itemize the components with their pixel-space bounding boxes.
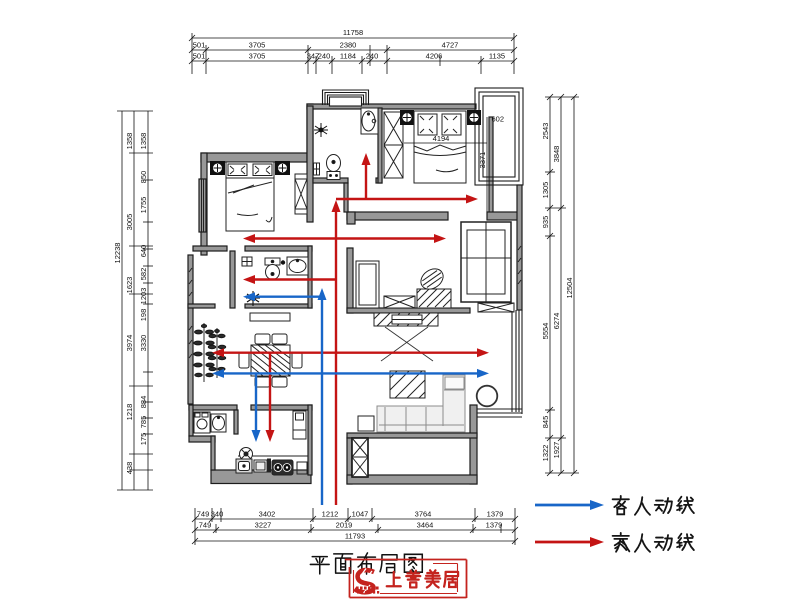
svg-text:3974: 3974 (125, 335, 134, 352)
svg-text:1379: 1379 (486, 521, 503, 530)
svg-text:1135: 1135 (489, 52, 505, 61)
svg-text:4727: 4727 (442, 41, 459, 50)
svg-text:3371: 3371 (478, 152, 487, 169)
svg-text:1927: 1927 (552, 442, 561, 459)
svg-text:1358: 1358 (139, 133, 148, 150)
svg-text:240: 240 (318, 52, 331, 61)
svg-text:3005: 3005 (125, 214, 134, 231)
svg-text:1755: 1755 (139, 197, 148, 214)
svg-text:11758: 11758 (343, 28, 363, 37)
svg-text:3227: 3227 (255, 521, 272, 530)
svg-text:3848: 3848 (552, 146, 561, 163)
svg-text:1218: 1218 (125, 404, 134, 421)
svg-text:3705: 3705 (249, 52, 266, 61)
svg-text:1184: 1184 (340, 52, 356, 61)
svg-text:582: 582 (139, 268, 148, 281)
svg-text:1322: 1322 (541, 445, 550, 462)
svg-text:749: 749 (197, 510, 210, 519)
svg-text:3330: 3330 (139, 335, 148, 352)
svg-text:1203: 1203 (139, 288, 148, 305)
svg-text:2543: 2543 (541, 123, 550, 140)
svg-text:1212: 1212 (322, 510, 339, 519)
svg-text:11793: 11793 (345, 532, 365, 541)
svg-text:12238: 12238 (113, 243, 122, 264)
svg-text:1358: 1358 (125, 133, 134, 150)
svg-text:501: 501 (193, 41, 206, 50)
svg-text:198: 198 (139, 309, 148, 322)
svg-text:12504: 12504 (565, 278, 574, 299)
svg-text:640: 640 (139, 245, 148, 258)
svg-text:438: 438 (125, 462, 134, 475)
svg-text:2380: 2380 (340, 41, 357, 50)
svg-text:1379: 1379 (487, 510, 504, 519)
svg-text:935: 935 (541, 216, 550, 229)
svg-text:175: 175 (139, 433, 148, 446)
svg-text:845: 845 (541, 416, 550, 429)
svg-text:3402: 3402 (259, 510, 276, 519)
svg-text:5554: 5554 (541, 323, 550, 340)
svg-text:3464: 3464 (417, 521, 434, 530)
svg-text:2019: 2019 (336, 521, 353, 530)
svg-text:6274: 6274 (552, 313, 561, 330)
svg-text:1305: 1305 (541, 182, 550, 199)
svg-text:3764: 3764 (415, 510, 432, 519)
svg-text:1047: 1047 (352, 510, 369, 519)
svg-text:1623: 1623 (125, 277, 134, 294)
svg-text:850: 850 (139, 171, 148, 184)
svg-text:3705: 3705 (249, 41, 266, 50)
svg-text:4194: 4194 (433, 134, 450, 143)
svg-text:602: 602 (492, 115, 505, 124)
